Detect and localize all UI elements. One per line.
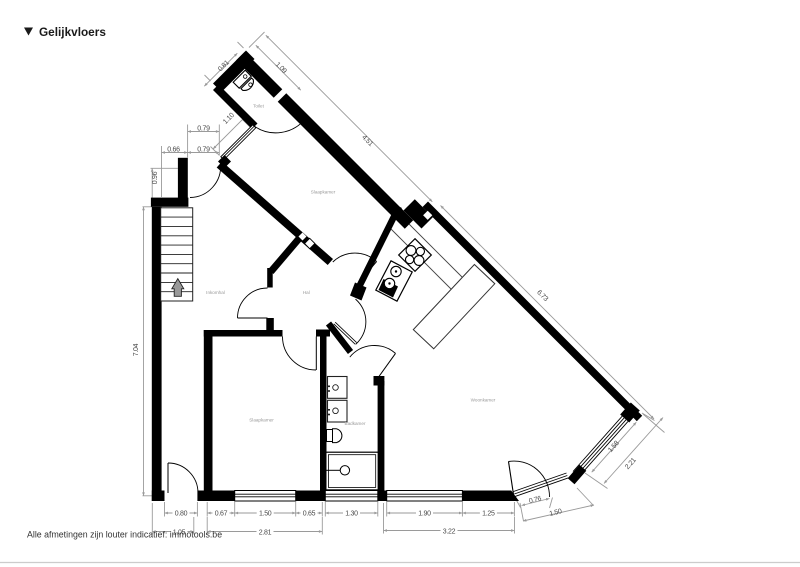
svg-text:1.50: 1.50 [259, 511, 272, 518]
svg-text:Inkomhal: Inkomhal [206, 290, 225, 295]
svg-text:0.66: 0.66 [167, 146, 180, 153]
svg-text:Hal: Hal [303, 290, 310, 295]
svg-text:1.25: 1.25 [482, 511, 495, 518]
svg-text:0.79: 0.79 [197, 146, 210, 153]
svg-text:Slaapkamer: Slaapkamer [311, 190, 336, 195]
svg-text:7.04: 7.04 [133, 343, 140, 356]
svg-text:Woonkamer: Woonkamer [471, 398, 496, 403]
svg-text:0.79: 0.79 [197, 126, 210, 133]
svg-text:0.96: 0.96 [152, 171, 159, 184]
svg-text:Alle afmetingen zijn louter in: Alle afmetingen zijn louter indicatief: … [27, 530, 222, 540]
svg-text:0.67: 0.67 [215, 511, 228, 518]
svg-text:0.80: 0.80 [175, 511, 188, 518]
svg-text:Toilet: Toilet [253, 104, 264, 109]
svg-text:Gelijkvloers: Gelijkvloers [39, 25, 106, 39]
svg-text:Slaapkamer: Slaapkamer [249, 417, 274, 422]
svg-text:3.22: 3.22 [443, 529, 456, 536]
svg-text:Badkamer: Badkamer [345, 421, 366, 426]
svg-text:1.30: 1.30 [345, 511, 358, 518]
svg-text:2.81: 2.81 [259, 530, 272, 537]
svg-text:0.65: 0.65 [303, 511, 316, 518]
svg-text:1.90: 1.90 [418, 511, 431, 518]
